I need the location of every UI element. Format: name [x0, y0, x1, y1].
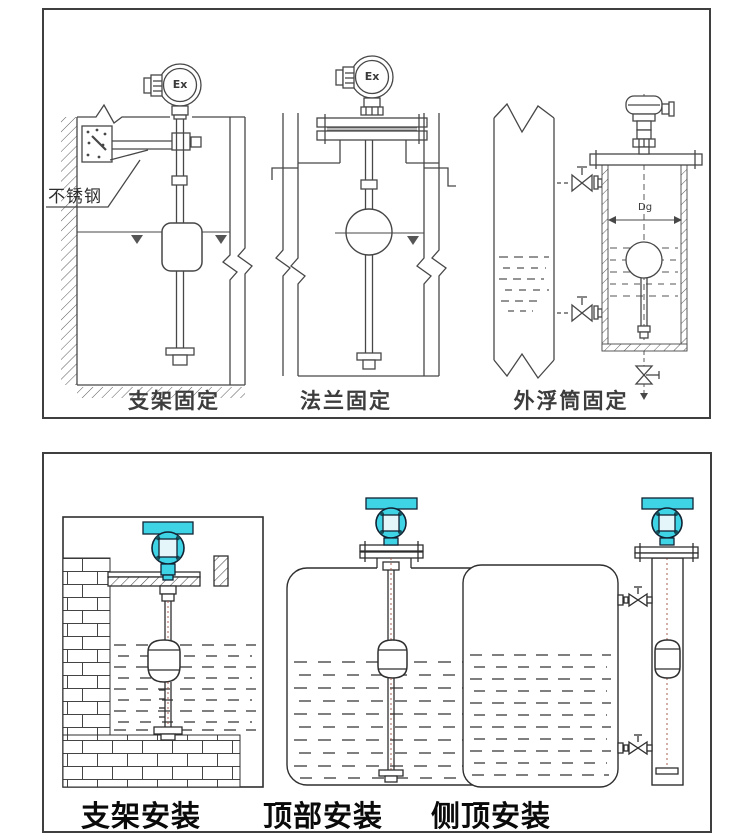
installation-diagram-sheet: 不锈钢 Ex Ex Dg 支架固定 法兰固定 外浮筒固定	[0, 0, 750, 840]
bracket-mounting-diagram	[63, 517, 263, 787]
float	[655, 640, 680, 678]
external-chamber-fixing-diagram	[494, 94, 702, 400]
top-panel: 不锈钢 Ex Ex Dg 支架固定 法兰固定 外浮筒固定	[42, 8, 711, 419]
level-symbol	[407, 236, 419, 245]
bracket-arm	[110, 133, 201, 160]
flange-fixing-diagram	[272, 56, 456, 376]
caption-external-chamber-fixing: 外浮筒固定	[481, 389, 661, 413]
isolation-valve-upper	[557, 167, 602, 191]
transmitter-head	[642, 498, 693, 545]
caption-side-top-mounting: 侧顶安装	[420, 800, 562, 832]
dg-dimension	[608, 216, 682, 224]
isolation-valve-lower	[557, 297, 602, 321]
level-symbol	[131, 235, 143, 244]
connection-valve-upper	[618, 587, 652, 606]
liquid-dashes	[499, 257, 549, 311]
ex-marking: Ex	[166, 78, 194, 91]
caption-bracket-mounting: 支架安装	[70, 800, 212, 832]
dg-label: Dg	[638, 202, 668, 213]
flange	[317, 114, 427, 144]
connection-valve-lower	[618, 735, 652, 754]
transmitter-head	[626, 96, 674, 154]
float	[346, 209, 392, 255]
float	[148, 640, 180, 682]
float	[626, 242, 662, 278]
caption-flange-fixing: 法兰固定	[276, 389, 416, 413]
caption-bracket-fixing: 支架固定	[104, 389, 244, 413]
bottom-panel: 支架安装 顶部安装 侧顶安装	[42, 452, 712, 833]
ex-head	[144, 64, 201, 119]
bracket-fixing-diagram	[46, 64, 252, 398]
mounting-plate	[82, 126, 112, 162]
bottom-panel-drawing	[44, 454, 710, 831]
caption-top-mounting: 顶部安装	[252, 800, 394, 832]
ex-head	[336, 56, 393, 115]
level-symbol	[215, 235, 227, 244]
side-top-mounting-diagram	[463, 498, 698, 787]
stainless-steel-label: 不锈钢	[48, 182, 110, 207]
transmitter-head	[366, 498, 417, 545]
float	[378, 640, 407, 678]
float	[162, 223, 202, 271]
ex-marking: Ex	[358, 70, 386, 83]
chamber-flange	[590, 154, 702, 165]
